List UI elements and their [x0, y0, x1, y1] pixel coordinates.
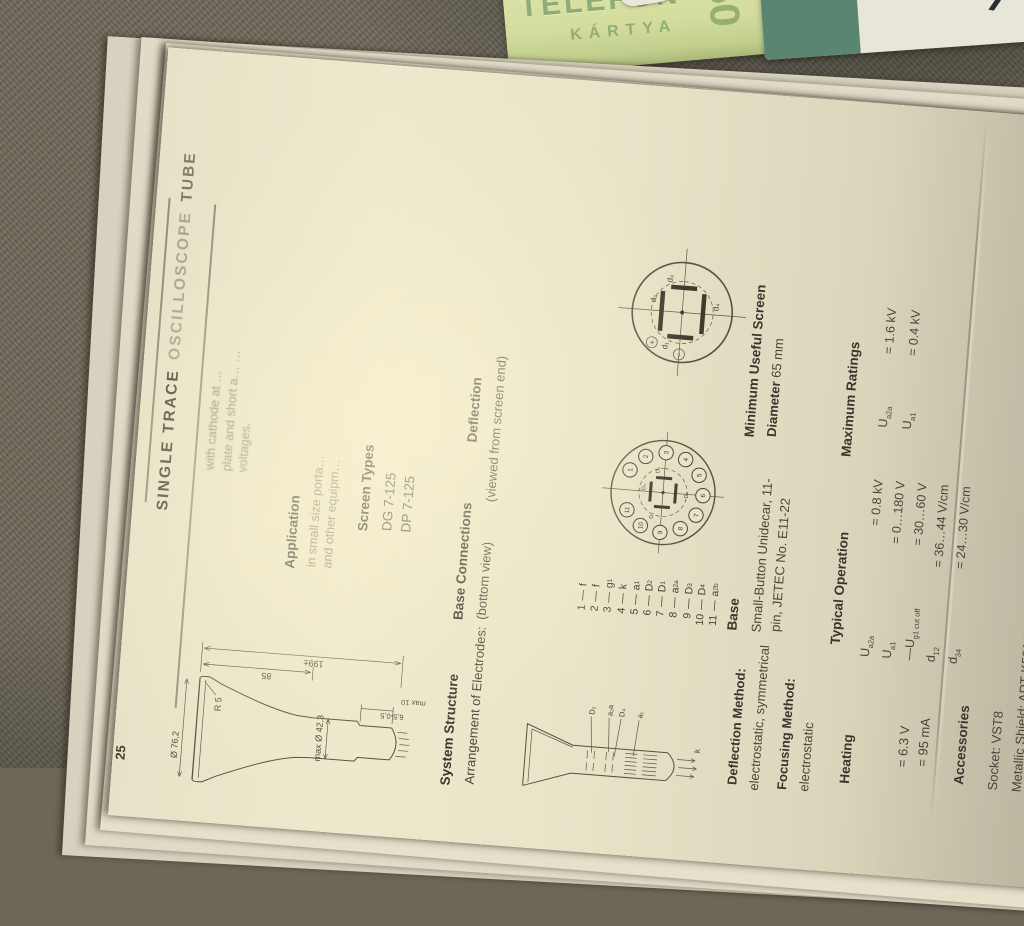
deflection-plate-label-left: d₁ [660, 341, 670, 349]
pin-number: 2 [588, 605, 602, 621]
max-ratings-rows: Ua2a = 1.6 kV Ua1 = 0.4 kV [874, 307, 931, 430]
pin-separator: — [682, 598, 696, 610]
deflection-plate-label-bottom: d₄ [711, 303, 721, 311]
electrode-label-2: a₂a [605, 704, 615, 717]
svg-text:9: 9 [657, 530, 664, 535]
dim-rim-radius: R 5 [212, 697, 223, 712]
pin-label-subscript: 2a [670, 580, 684, 588]
screen-types-heading: Screen Types [355, 444, 377, 532]
second-card-teal-section [760, 0, 861, 60]
pin-label: f [591, 584, 604, 588]
pin-label: D [656, 584, 670, 593]
dim-base-2: max 10 [401, 698, 426, 709]
pin-separator: — [668, 597, 682, 609]
pin-separator: — [629, 594, 643, 606]
title-part-2: OSCILLOSCOPE [166, 210, 195, 360]
deflection-diagram: + − d₂ d₁ d₃ d₄ [622, 252, 742, 372]
min-screen-label: Diameter [764, 381, 783, 438]
pin-label: a [670, 587, 684, 594]
electrode-structure-diagram: D₂ a₂a D₄ a₁ k [514, 672, 712, 802]
intro-paragraph: with cathode at … plate and short a… … v… [201, 348, 260, 473]
deflection-plate-label-top: d₂ [649, 294, 659, 302]
title-part-1: SINGLE TRACE [154, 368, 182, 511]
svg-text:8: 8 [677, 526, 684, 531]
pin-separator: — [695, 599, 709, 611]
accessories-shield: Metallic Shield: ART-K591A [1009, 633, 1024, 792]
electrode-label-4: a₁ [635, 711, 645, 719]
deflection-subheading: (viewed from screen end) [483, 355, 509, 502]
pin-separator: — [589, 591, 603, 603]
pin-number: 7 [654, 610, 668, 626]
accessories-socket: Socket: VST8 [985, 710, 1006, 790]
svg-text:7: 7 [693, 513, 700, 518]
base-plate-label-bottom: D₄ [684, 491, 691, 498]
pin-label: g [604, 582, 618, 589]
pin-separator: — [616, 593, 630, 605]
base-diagram: 1234567891011 D₂ D₁ D₃ D₄ [604, 433, 722, 551]
svg-text:4: 4 [683, 457, 690, 462]
min-screen-value: 65 mm [768, 338, 786, 379]
base-plate-label-top: D₂ [641, 484, 647, 491]
pin-separator: — [576, 590, 590, 602]
pin-row: 11 — a2b [706, 583, 723, 630]
svg-text:1: 1 [627, 468, 634, 473]
base-heading: Base [724, 598, 741, 631]
polarity-plus-sign: + [648, 339, 657, 345]
operation-symbol: Ua1 [879, 641, 902, 660]
pin-separator: — [642, 595, 656, 607]
page-number: 25 [112, 745, 128, 761]
cathode-label: k [693, 748, 702, 754]
rating-value: = 0.4 kV [904, 309, 932, 357]
pin-label: D [643, 583, 657, 592]
svg-text:2: 2 [643, 454, 650, 459]
pin-number: 10 [693, 613, 707, 629]
pin-separator: — [603, 592, 617, 604]
pin-separator: — [708, 600, 722, 612]
pin-label: D [683, 586, 697, 595]
pin-number: 6 [641, 609, 655, 625]
photo-of-datasheet: { "scene": { "phone_card": { "title_line… [0, 0, 1024, 768]
heating-heading: Heating [837, 734, 856, 785]
electrode-label-3: D₄ [617, 708, 627, 717]
pin-number: 4 [614, 607, 628, 623]
accessories-heading: Accessories [951, 705, 972, 785]
rating-symbol: Ua2a [874, 405, 900, 428]
pin-number: 9 [680, 612, 694, 628]
dim-base-1: 6,5-0,5 [380, 711, 404, 722]
pin-label: D [696, 587, 710, 596]
pin-number: 1 [575, 604, 589, 620]
polarity-minus-sign: − [675, 352, 684, 358]
typical-operation-rows: Ua2a = 0.8 kV Ua1 = 0…180 V —Ug1 cut off… [857, 479, 980, 665]
pin-label: a [630, 584, 644, 591]
title-part-3: TUBE [178, 150, 199, 202]
heating-current: = 95 mA [914, 717, 933, 767]
screen-type: DP 7-125 [396, 473, 420, 533]
heating-voltage: = 6.3 V [894, 725, 912, 768]
pin-number: 5 [627, 608, 641, 624]
max-ratings-heading: Maximum Ratings [838, 341, 862, 457]
focusing-method-label: Focusing Method: [774, 678, 798, 791]
pin-number: 8 [667, 611, 681, 627]
pen-mark: 7 [983, 0, 1010, 20]
screen-types-list: DG 7-125DP 7-125 [377, 472, 419, 533]
tube-outline-drawing: Ø 76,2 R 5 85 199± max Ø 42,3 6,5-0,5 ma… [144, 579, 442, 840]
dim-total-length: 199± [303, 658, 324, 670]
svg-text:11: 11 [624, 506, 632, 514]
datasheet-page: 25 SINGLE TRACEOSCILLOSCOPETUBE with cat… [108, 47, 1024, 894]
phone-card-denomination: 50 [698, 0, 750, 29]
base-plate-label-left: D₁ [649, 513, 655, 519]
svg-text:10: 10 [637, 521, 645, 529]
rating-symbol: Ua1 [898, 411, 923, 430]
phone-card-subtitle: KÁRTYA [570, 18, 678, 45]
system-structure-heading: System Structure [437, 673, 461, 786]
deflection-method-value: electrostatic, symmetrical [746, 645, 772, 792]
pin-list: 1 — f 2 — f 3 — g1 4 — k 5 [575, 573, 723, 631]
deflection-heading: Deflection [464, 377, 484, 443]
system-structure-subheading: Arrangement of Electrodes: [462, 626, 489, 785]
pin-number: 11 [706, 614, 720, 630]
electrode-label-1: D₂ [587, 706, 597, 715]
pin-number: 3 [601, 606, 615, 622]
pin-label: k [617, 583, 631, 589]
deflection-plate-label-right: d₃ [666, 274, 676, 282]
base-connections-subheading: (bottom view) [473, 541, 494, 620]
typical-operation-heading: Typical Operation [828, 531, 852, 645]
application-heading: Application [282, 495, 303, 569]
base-connections-heading: Base Connections [450, 502, 474, 621]
pin-label: f [577, 583, 590, 587]
operation-symbol: Ua2a [857, 635, 881, 658]
svg-text:6: 6 [700, 493, 707, 498]
svg-text:3: 3 [663, 450, 670, 455]
pin-label: a [709, 590, 723, 597]
pin-label-subscript: 2b [710, 583, 724, 591]
min-screen-line: Diameter 65 mm [764, 338, 787, 438]
focusing-method-value: electrostatic [796, 722, 816, 792]
dim-face-diameter: Ø 76,2 [169, 731, 181, 759]
svg-text:5: 5 [696, 473, 703, 478]
pin-separator: — [655, 596, 669, 608]
dim-front-length: 85 [261, 671, 272, 682]
second-card: 7 [760, 0, 1024, 60]
base-plate-label-right: D₃ [656, 467, 662, 474]
